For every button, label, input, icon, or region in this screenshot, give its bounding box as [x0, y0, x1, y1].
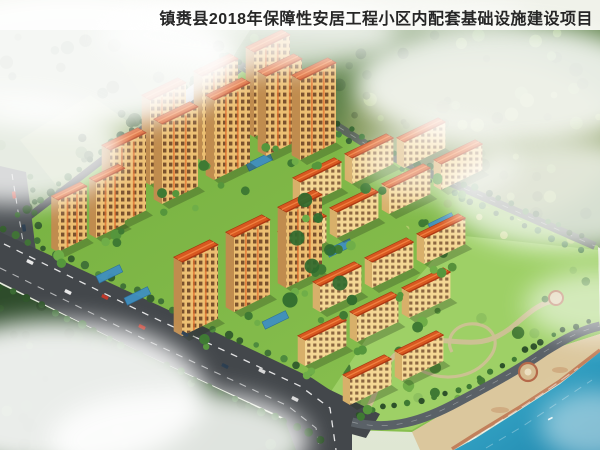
- tree: [318, 317, 324, 323]
- tree: [363, 405, 373, 415]
- street-tree: [487, 369, 493, 375]
- beach-plaza: [519, 363, 537, 381]
- tree: [437, 268, 447, 278]
- tree: [160, 209, 167, 216]
- tree: [272, 146, 278, 152]
- tree: [292, 158, 299, 165]
- street-tree: [158, 298, 164, 304]
- street-tree: [15, 212, 21, 218]
- tree: [312, 163, 319, 170]
- tree: [302, 290, 309, 297]
- street-tree: [225, 331, 233, 339]
- tower-building: [226, 215, 277, 317]
- tree: [289, 230, 304, 245]
- tree: [347, 295, 358, 306]
- tree: [218, 182, 225, 189]
- tree: [244, 312, 252, 320]
- tree: [430, 266, 438, 274]
- tower-building: [174, 240, 225, 341]
- tree: [302, 215, 310, 223]
- tree: [101, 238, 110, 247]
- street-tree: [467, 384, 472, 389]
- tree: [430, 388, 440, 398]
- street-tree: [512, 357, 517, 362]
- tree: [360, 183, 371, 194]
- tree: [357, 413, 365, 421]
- tree: [298, 193, 313, 208]
- street-tree: [456, 387, 462, 393]
- street-tree: [442, 391, 447, 396]
- street-tree: [531, 343, 538, 350]
- street-tree: [404, 400, 410, 406]
- tree: [172, 190, 179, 197]
- tree: [157, 188, 167, 198]
- street-tree: [537, 339, 544, 346]
- street-tree: [0, 226, 7, 233]
- tree: [113, 238, 122, 247]
- street-tree: [391, 403, 397, 409]
- street-tree: [280, 355, 287, 362]
- tree: [282, 292, 297, 307]
- street-tree: [35, 222, 43, 230]
- street-tree: [349, 126, 354, 131]
- fog-cloud: [360, 120, 520, 200]
- street-tree: [292, 362, 300, 370]
- street-tree: [359, 134, 365, 140]
- tree: [346, 241, 356, 251]
- tree: [406, 386, 413, 393]
- street-tree: [147, 295, 155, 303]
- street-tree: [22, 294, 30, 302]
- tree: [339, 311, 348, 320]
- tree: [118, 228, 124, 234]
- street-tree: [25, 239, 32, 246]
- street-tree: [10, 288, 16, 294]
- street-tree: [317, 436, 325, 444]
- tree: [397, 292, 403, 298]
- street-tree: [419, 398, 425, 404]
- tree: [303, 372, 311, 380]
- street-tree: [477, 375, 482, 380]
- tree: [241, 186, 250, 195]
- tree: [358, 345, 367, 354]
- street-tree: [68, 255, 75, 262]
- tree: [512, 327, 524, 339]
- street-tree: [380, 404, 386, 410]
- tree: [529, 328, 539, 338]
- tree: [305, 259, 320, 274]
- tree: [418, 219, 426, 227]
- street-tree: [38, 301, 45, 308]
- street-tree: [52, 310, 59, 317]
- street-tree: [236, 337, 243, 344]
- tree: [412, 322, 423, 333]
- street-tree: [346, 138, 352, 144]
- tree: [254, 320, 260, 326]
- street-tree: [40, 246, 46, 252]
- street-tree: [265, 350, 272, 357]
- street-tree: [31, 210, 37, 216]
- street-tree: [522, 346, 529, 353]
- street-tree: [12, 231, 20, 239]
- tree: [313, 213, 323, 223]
- tree: [261, 143, 270, 152]
- tree: [192, 205, 199, 212]
- street-tree: [81, 261, 89, 269]
- street-tree: [205, 383, 213, 391]
- project-title: 镇赉县2018年保障性安居工程小区内配套基础设施建设项目: [159, 5, 593, 29]
- tree: [324, 244, 336, 256]
- tree: [199, 334, 210, 345]
- street-tree: [120, 283, 126, 289]
- tree: [476, 313, 487, 324]
- rendering-canvas: 镇赉县2018年保障性安居工程小区内配套基础设施建设项目: [0, 0, 600, 450]
- street-tree: [253, 342, 259, 348]
- street-tree: [500, 363, 505, 368]
- street-tree: [23, 205, 32, 214]
- tower-building: [292, 58, 343, 165]
- tree: [333, 276, 348, 291]
- tree: [448, 263, 457, 272]
- street-tree: [336, 131, 342, 137]
- tree: [198, 160, 209, 171]
- street-tree: [34, 237, 41, 244]
- aerial-scene: [0, 0, 600, 450]
- tree: [57, 259, 66, 268]
